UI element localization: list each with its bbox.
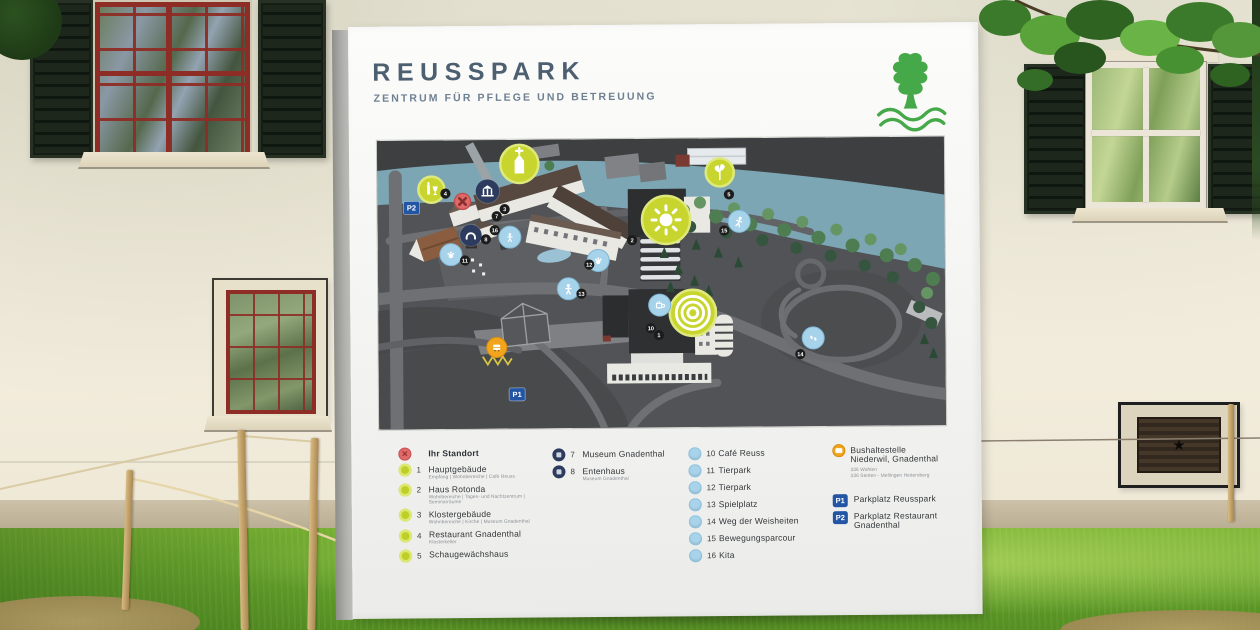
cellar-hatch: ★ [1118, 402, 1240, 488]
sign-subtitle: ZENTRUM FÜR PFLEGE UND BETREUUNG [374, 91, 657, 105]
highlight-marker-icon [399, 529, 412, 542]
cellar-hatch-door: ★ [1137, 417, 1221, 473]
map-badge-14: 14 [795, 349, 805, 359]
legend-column-info: 7 Museum Gnadenthal 8 EntenhausMuseum Gn… [552, 447, 682, 485]
poi-marker-icon [688, 447, 701, 460]
legend-item-standort: ✕ Ihr Standort [398, 446, 548, 460]
svg-text:7: 7 [495, 214, 498, 220]
svg-text:13: 13 [578, 292, 584, 298]
schaugewaechshaus-marker [706, 158, 734, 186]
window-sill [78, 152, 270, 169]
your-location-icon: ✕ [398, 448, 411, 461]
legend-item-12: 12 Tierpark [689, 480, 819, 494]
svg-text:15: 15 [721, 228, 727, 234]
map-badge-12: 12 [584, 259, 594, 269]
legend-label: Entenhaus [582, 466, 628, 476]
poi-marker-icon [689, 515, 702, 528]
legend-item-8: 8 EntenhausMuseum Gnadenthal [552, 464, 682, 482]
cafe-reuss-marker [649, 294, 671, 316]
spielplatz-marker [557, 278, 579, 300]
star-ornament: ★ [1172, 438, 1185, 453]
map-badge-7: 7 [492, 211, 502, 221]
info-marker-icon [552, 465, 565, 478]
legend-item-5: 5 Schaugewächshaus [399, 548, 549, 562]
map-plate-P2: P2 [403, 201, 419, 214]
legend-sublabel: Klosterkeller [429, 540, 521, 546]
map-badge-3: 3 [500, 204, 510, 214]
your-location-map-marker [454, 193, 470, 209]
legend-item-10: 10 Café Reuss [688, 446, 818, 460]
legend-item-7: 7 Museum Gnadenthal [552, 447, 682, 461]
legend-label: Hauptgebäude [428, 464, 515, 474]
svg-text:5: 5 [727, 192, 730, 198]
svg-text:16: 16 [492, 228, 498, 234]
reusspark-logo [870, 48, 951, 135]
legend-item-p2: P2 Parkplatz Restaurant Gnadenthal [833, 510, 968, 531]
window-sill [204, 416, 332, 432]
parking-p1-icon: P1 [833, 494, 848, 507]
site-map-illustration: 123457810111213141516P1P2 [377, 136, 946, 429]
legend-label: Spielplatz [719, 499, 758, 509]
legend-label: Haus Rotonda [429, 484, 549, 494]
legend-label: Klostergebäude [429, 510, 530, 520]
svg-text:14: 14 [797, 352, 804, 358]
site-map: 123457810111213141516P1P2 [377, 136, 946, 429]
legend-sublabel: Museum Gnadenthal [583, 477, 629, 483]
legend-label: Weg der Weisheiten [719, 516, 799, 526]
legend-item-bus: Bushaltestelle Niederwil, Gnadenthal 336… [832, 443, 967, 480]
map-badge-13: 13 [576, 289, 586, 299]
legend-label: Niederwil, Gnadenthal [850, 455, 938, 465]
poi-marker-icon [688, 464, 701, 477]
highlight-marker-icon [399, 484, 412, 497]
bushaltestelle-marker [487, 337, 507, 357]
legend-label: Tierpark [719, 482, 752, 492]
svg-text:2: 2 [631, 238, 634, 244]
highlight-marker-icon [399, 549, 412, 562]
legend-item-13: 13 Spielplatz [689, 497, 819, 511]
legend-label: Bewegungsparcour [719, 533, 796, 543]
legend-label: Parkplatz Reusspark [854, 494, 936, 504]
map-badge-5: 5 [724, 189, 734, 199]
svg-text:1: 1 [657, 333, 660, 339]
legend-item-14: 14 Weg der Weisheiten [689, 514, 819, 528]
highlight-marker-icon [398, 464, 411, 477]
legend-sublabel: 336 Stetten - Mellingen Heitersberg [851, 474, 939, 480]
haus-rotonda-marker [642, 196, 690, 244]
svg-text:P2: P2 [407, 203, 416, 212]
legend-label: Parkplatz Restaurant Gnadenthal [854, 511, 949, 530]
legend-item-1: 1 HauptgebäudeEmpfang | Wohnbereiche | C… [398, 462, 548, 480]
entenhaus-marker [460, 224, 482, 246]
window-mullion [166, 7, 171, 153]
klostergebaeude-marker [500, 145, 538, 183]
legend-label: Museum Gnadenthal [582, 449, 664, 459]
map-badge-11: 11 [460, 255, 470, 265]
svg-text:3: 3 [503, 207, 506, 213]
bewegungsparcour-marker [728, 210, 750, 232]
legend-item-11: 11 Tierpark [688, 463, 818, 477]
poi-marker-icon [689, 549, 702, 562]
legend-column-main: ✕ Ihr Standort 1 HauptgebäudeEmpfang | W… [398, 446, 549, 565]
tierpark-west-marker [440, 244, 462, 266]
poi-marker-icon [689, 532, 702, 545]
map-badge-15: 15 [719, 225, 729, 235]
museum-gnadenthal-marker [475, 179, 499, 203]
legend-item-2: 2 Haus RotondaWohnbereiche | Tages- und … [399, 483, 549, 507]
map-badge-10: 10 [646, 323, 656, 333]
legend-label: Tierpark [718, 465, 751, 475]
legend-sublabel: Wohnbereiche | Kirche | Museum Gnadentha… [429, 520, 530, 526]
kita-marker [499, 226, 521, 248]
info-marker-icon [552, 448, 565, 461]
shutter [258, 0, 326, 158]
window-mullion [100, 71, 245, 76]
bus-stop-icon [832, 444, 845, 457]
tree-branch-top-right [975, 0, 1260, 130]
poi-marker-icon [689, 498, 702, 511]
legend-column-poi: 10 Café Reuss 11 Tierpark 12 Tierpark 13… [688, 446, 819, 565]
legend-item-3: 3 KlostergebäudeWohnbereiche | Kirche | … [399, 508, 549, 526]
parking-p2-icon: P2 [833, 511, 848, 524]
map-plate-P1: P1 [509, 388, 525, 401]
map-badge-8: 8 [481, 234, 491, 244]
poi-marker-icon [689, 481, 702, 494]
legend-label: Restaurant Gnadenthal [429, 530, 521, 540]
map-badge-16: 16 [490, 225, 500, 235]
photo-of-information-sign: ★ REUSSPARK ZENT [0, 0, 1260, 630]
map-badge-2: 2 [627, 235, 637, 245]
legend-sublabel: 336 Wohlen [850, 467, 938, 473]
window-mullion [1092, 130, 1200, 136]
highlight-marker-icon [399, 509, 412, 522]
window-sill [1072, 208, 1228, 223]
svg-text:12: 12 [586, 263, 592, 269]
svg-text:P1: P1 [513, 390, 522, 399]
legend-item-16: 16 Kita [689, 548, 819, 562]
legend-item-4: 4 Restaurant GnadenthalKlosterkeller [399, 528, 549, 546]
svg-text:10: 10 [648, 326, 654, 332]
weg-der-weisheiten-marker [802, 327, 824, 349]
map-badge-4: 4 [440, 188, 450, 198]
restaurant-gnadenthal-marker [418, 177, 444, 203]
window-glass [95, 2, 250, 158]
legend-sublabel: Wohnbereiche | Tages- und Nachtzentrum |… [429, 494, 549, 505]
svg-text:8: 8 [484, 237, 487, 243]
svg-text:11: 11 [462, 259, 468, 265]
legend-item-p1: P1 Parkplatz Reusspark [833, 493, 968, 507]
hauptgebaeude-marker [670, 290, 716, 336]
window-glass [226, 290, 316, 414]
legend-label: Schaugewächshaus [429, 550, 508, 560]
legend-item-15: 15 Bewegungsparcour [689, 531, 819, 545]
legend-label: Ihr Standort [428, 448, 479, 458]
wooden-stake [1228, 404, 1234, 522]
legend-sublabel: Empfang | Wohnbereiche | Café Reuss [429, 475, 515, 481]
sign-title: REUSSPARK [372, 57, 586, 88]
information-sign-board: REUSSPARK ZENTRUM FÜR PFLEGE UND BETREUU… [348, 22, 983, 619]
legend-column-transport: Bushaltestelle Niederwil, Gnadenthal 336… [832, 443, 968, 534]
map-badge-1: 1 [654, 330, 664, 340]
wall-wire [0, 461, 340, 463]
legend-label: Café Reuss [718, 448, 764, 458]
legend-label: Kita [719, 550, 735, 559]
